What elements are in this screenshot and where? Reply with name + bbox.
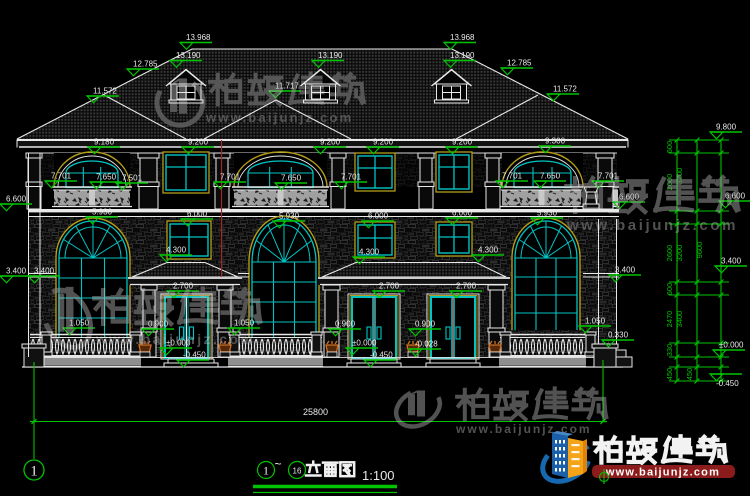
svg-text:-0.450: -0.450 xyxy=(716,379,739,388)
svg-text:9.300: 9.300 xyxy=(545,137,566,146)
svg-text:2.700: 2.700 xyxy=(456,282,477,291)
svg-text:~: ~ xyxy=(274,457,281,471)
svg-text:7.701: 7.701 xyxy=(51,172,72,181)
svg-text:6.000: 6.000 xyxy=(452,209,473,218)
svg-text:7.650: 7.650 xyxy=(540,172,561,181)
svg-text:-0.450: -0.450 xyxy=(183,351,206,360)
svg-text:450: 450 xyxy=(685,368,694,381)
svg-text:3.400: 3.400 xyxy=(721,257,742,266)
svg-text:3.400: 3.400 xyxy=(6,267,27,276)
svg-text:www.baijunjz.com: www.baijunjz.com xyxy=(566,217,738,234)
svg-text:-0.450: -0.450 xyxy=(370,351,393,360)
svg-text:±0.000: ±0.000 xyxy=(719,341,744,350)
svg-text:9.200: 9.200 xyxy=(373,138,394,147)
svg-text:2.700: 2.700 xyxy=(379,282,400,291)
svg-text:5.930: 5.930 xyxy=(279,212,300,221)
svg-text:13.190: 13.190 xyxy=(318,51,343,60)
svg-text:9.800: 9.800 xyxy=(716,123,737,132)
svg-text:9.200: 9.200 xyxy=(452,138,473,147)
svg-text:6.600: 6.600 xyxy=(6,195,27,204)
svg-text:0.900: 0.900 xyxy=(335,320,356,329)
svg-text:7.701: 7.701 xyxy=(220,173,241,182)
svg-text:-0.028: -0.028 xyxy=(415,340,438,349)
svg-text:7.650: 7.650 xyxy=(281,174,302,183)
svg-text:9.180: 9.180 xyxy=(94,138,115,147)
svg-text:16: 16 xyxy=(293,467,302,476)
svg-text:13.190: 13.190 xyxy=(450,51,475,60)
svg-text:4.300: 4.300 xyxy=(478,246,499,255)
svg-text:0.900: 0.900 xyxy=(415,320,436,329)
svg-text:2600: 2600 xyxy=(665,245,674,262)
svg-text:13.190: 13.190 xyxy=(176,51,201,60)
svg-text:1: 1 xyxy=(263,464,269,478)
svg-text:9600: 9600 xyxy=(695,242,704,259)
svg-text:1.050: 1.050 xyxy=(234,319,255,328)
svg-text:2.700: 2.700 xyxy=(173,282,194,291)
svg-text:4.300: 4.300 xyxy=(359,248,380,257)
svg-text:7.650: 7.650 xyxy=(96,173,117,182)
svg-text:12.785: 12.785 xyxy=(507,59,532,68)
svg-text:5.930: 5.930 xyxy=(537,209,558,218)
svg-text:±0.000: ±0.000 xyxy=(352,339,377,348)
svg-text:600: 600 xyxy=(665,283,674,296)
svg-text:11.572: 11.572 xyxy=(553,85,577,94)
svg-text:3.400: 3.400 xyxy=(615,266,636,275)
svg-text:6.000: 6.000 xyxy=(187,210,208,219)
svg-text:13.968: 13.968 xyxy=(450,33,475,42)
svg-text:4.300: 4.300 xyxy=(166,246,187,255)
svg-text:600: 600 xyxy=(665,141,674,154)
svg-text:1:100: 1:100 xyxy=(362,468,395,483)
svg-text:2470: 2470 xyxy=(665,311,674,328)
svg-text:25800: 25800 xyxy=(303,407,328,417)
svg-text:7.701: 7.701 xyxy=(341,173,362,182)
svg-text:450: 450 xyxy=(665,368,674,381)
svg-text:1.050: 1.050 xyxy=(585,317,606,326)
svg-text:3.400: 3.400 xyxy=(34,267,55,276)
svg-text:7.701: 7.701 xyxy=(502,172,523,181)
svg-text:11.572: 11.572 xyxy=(93,87,117,96)
svg-text:7.501: 7.501 xyxy=(122,174,143,183)
svg-text:0.330: 0.330 xyxy=(608,331,629,340)
svg-text:3200: 3200 xyxy=(675,245,684,262)
svg-text:6.000: 6.000 xyxy=(368,212,389,221)
svg-text:www.baijunjz.com: www.baijunjz.com xyxy=(205,110,353,125)
svg-text:9.200: 9.200 xyxy=(320,138,341,147)
svg-text:12.785: 12.785 xyxy=(133,60,158,69)
svg-text:1: 1 xyxy=(30,464,38,480)
svg-text:9.200: 9.200 xyxy=(188,138,209,147)
svg-text:13.968: 13.968 xyxy=(186,33,211,42)
svg-text:www.baijunjz.com: www.baijunjz.com xyxy=(95,331,255,347)
svg-text:330: 330 xyxy=(665,344,674,357)
svg-text:www.baijunjz.com: www.baijunjz.com xyxy=(605,467,720,479)
svg-text:5.930: 5.930 xyxy=(92,208,113,217)
svg-text:3400: 3400 xyxy=(675,311,684,328)
